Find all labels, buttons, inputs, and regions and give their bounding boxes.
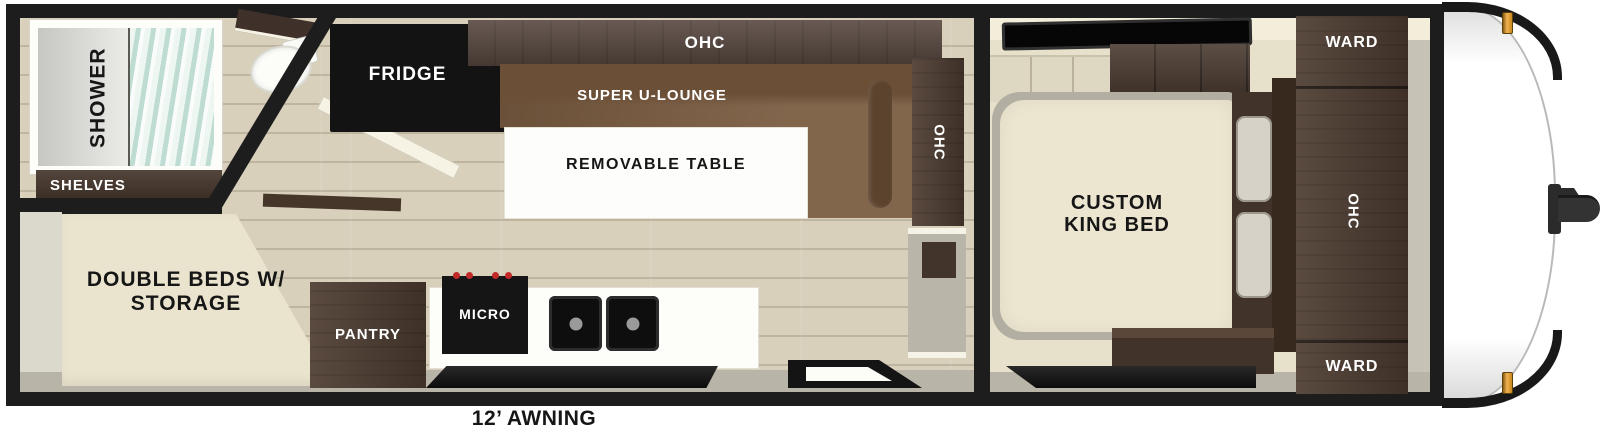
micro-label: MICRO bbox=[459, 307, 511, 323]
sink-right-basin bbox=[606, 296, 659, 351]
sink-drain-icon bbox=[569, 317, 582, 330]
pantry-cabinet: PANTRY bbox=[310, 282, 426, 388]
burner-icon bbox=[492, 272, 499, 279]
table-label: REMOVABLE TABLE bbox=[505, 156, 807, 174]
floorplan-diagram: SHOWER SHELVES DOUBLE BEDS W/ STORAGE PA… bbox=[0, 0, 1600, 435]
sink-drain-icon bbox=[626, 317, 639, 330]
bedroom-wall-band-right bbox=[1408, 40, 1430, 392]
burner-icon bbox=[466, 272, 473, 279]
bedroom-divider-wall bbox=[974, 14, 990, 404]
wardrobe-column: WARD OHC WARD bbox=[1296, 16, 1408, 394]
fridge-label: FRIDGE bbox=[330, 64, 485, 85]
marker-light-icon bbox=[1502, 12, 1513, 34]
overhead-cabinet-top: OHC bbox=[468, 20, 942, 66]
bedside-cubby bbox=[1236, 212, 1272, 298]
double-beds-label: DOUBLE BEDS W/ STORAGE bbox=[70, 268, 302, 315]
cabinet-seam bbox=[1296, 340, 1408, 343]
bedside-cubby bbox=[1236, 116, 1272, 202]
kitchen-window bbox=[426, 366, 718, 388]
shelves-label: SHELVES bbox=[36, 178, 126, 195]
cabinet-seam bbox=[1296, 86, 1408, 89]
awning-label: 12’ AWNING bbox=[438, 407, 630, 431]
marker-light-icon bbox=[1502, 372, 1513, 394]
ward-bottom-label: WARD bbox=[1296, 358, 1408, 376]
shower-stall bbox=[30, 20, 222, 174]
cabinet-inset bbox=[922, 242, 956, 278]
burner-icon bbox=[505, 272, 512, 279]
ward-top-label: WARD bbox=[1296, 34, 1408, 52]
king-bed-label: CUSTOM KING BED bbox=[1012, 192, 1222, 237]
bedroom-window-bottom bbox=[1006, 366, 1256, 388]
ohc-side-label: OHC bbox=[930, 124, 947, 160]
sink-left-basin bbox=[549, 296, 602, 351]
bedside-cubby-panel bbox=[1232, 92, 1276, 340]
removable-table: REMOVABLE TABLE bbox=[505, 128, 807, 218]
pantry-label: PANTRY bbox=[335, 327, 401, 344]
rear-wall-band bbox=[20, 212, 62, 372]
burner-icon bbox=[453, 272, 460, 279]
bedroom-overhead-cabinet bbox=[1110, 44, 1250, 98]
lounge-label: SUPER U-LOUNGE bbox=[552, 88, 752, 105]
microwave-stove: MICRO bbox=[442, 276, 528, 354]
hitch-coupler bbox=[1558, 195, 1600, 222]
bedroom-ohc-label: OHC bbox=[1296, 166, 1408, 256]
lounge-armrest bbox=[868, 80, 892, 208]
shower-label: SHOWER bbox=[78, 30, 118, 166]
doorside-cabinet bbox=[908, 228, 966, 358]
front-cap-trim-bottom bbox=[1442, 330, 1562, 408]
ohc-label: OHC bbox=[685, 33, 726, 52]
overhead-cabinet-side: OHC bbox=[912, 58, 964, 226]
shower-curtain bbox=[128, 28, 214, 166]
entry-door-opening bbox=[806, 367, 892, 381]
